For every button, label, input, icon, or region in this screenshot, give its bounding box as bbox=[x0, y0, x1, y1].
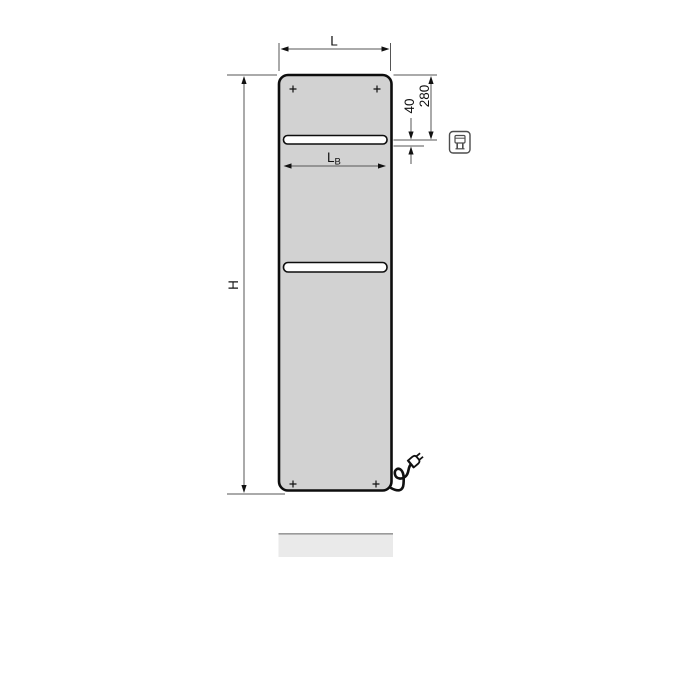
dimension-overall-width: L bbox=[279, 34, 391, 72]
radiator-panel bbox=[279, 75, 392, 491]
dimension-overall-height: H bbox=[226, 75, 285, 494]
radiator-dimension-diagram: L H 280 40 bbox=[0, 0, 700, 700]
dimension-slot-gap: 40 bbox=[394, 98, 425, 164]
power-cable bbox=[391, 452, 424, 491]
cable-cord bbox=[391, 464, 412, 491]
dim-label-280: 280 bbox=[417, 85, 432, 108]
diagram-svg: L H 280 40 bbox=[0, 0, 700, 700]
dim-label-LB-sub: B bbox=[335, 157, 341, 168]
arrow-down bbox=[241, 485, 246, 493]
arrow-up bbox=[408, 147, 413, 155]
arrow-down bbox=[408, 132, 413, 140]
towel-slot-lower bbox=[284, 263, 388, 273]
arrow-down bbox=[428, 132, 433, 140]
shadow-body bbox=[279, 533, 394, 557]
dim-label-40: 40 bbox=[402, 98, 417, 113]
power-plug bbox=[408, 452, 425, 468]
arrow-left bbox=[281, 46, 289, 51]
plug-pin-1 bbox=[416, 453, 420, 456]
plug-pin-2 bbox=[419, 457, 423, 460]
electric-plug-icon bbox=[450, 132, 471, 154]
arrow-up bbox=[428, 76, 433, 84]
arrow-up bbox=[241, 76, 246, 84]
icon-plug-head bbox=[455, 136, 465, 144]
floor-shadow bbox=[279, 533, 394, 557]
towel-slot-upper bbox=[284, 136, 388, 145]
dim-label-H: H bbox=[226, 280, 241, 290]
arrow-right bbox=[382, 46, 390, 51]
dim-label-L: L bbox=[330, 34, 338, 49]
